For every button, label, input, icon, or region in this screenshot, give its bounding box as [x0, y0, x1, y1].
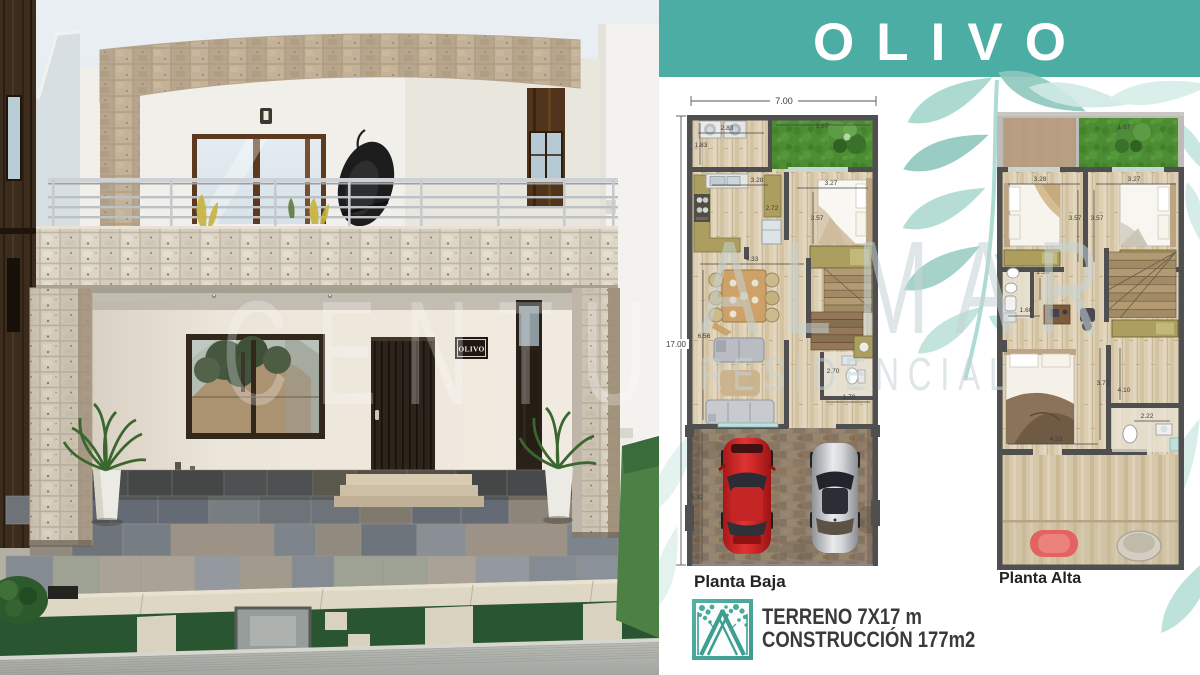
svg-text:3.67: 3.67	[816, 123, 829, 130]
svg-text:RESIDENCIAL: RESIDENCIAL	[700, 350, 1016, 400]
svg-text:3.27: 3.27	[825, 180, 838, 187]
svg-text:3.28: 3.28	[751, 177, 764, 184]
svg-text:CENTU: CENTU	[222, 272, 659, 437]
svg-text:3.27: 3.27	[1128, 176, 1141, 183]
svg-text:2.72: 2.72	[766, 205, 779, 212]
svg-text:1.67: 1.67	[1118, 124, 1131, 131]
svg-text:7.00: 7.00	[775, 96, 793, 106]
svg-text:ALMAR: ALMAR	[700, 214, 1126, 362]
svg-text:1.83: 1.83	[695, 142, 708, 149]
svg-text:17.00: 17.00	[666, 340, 687, 349]
svg-text:4.10: 4.10	[1118, 387, 1131, 394]
svg-text:3.28: 3.28	[1034, 176, 1047, 183]
svg-text:3.73: 3.73	[1097, 380, 1110, 387]
svg-text:4.33: 4.33	[1050, 436, 1063, 443]
svg-text:2.83: 2.83	[721, 125, 734, 132]
svg-text:2.22: 2.22	[1141, 413, 1154, 420]
